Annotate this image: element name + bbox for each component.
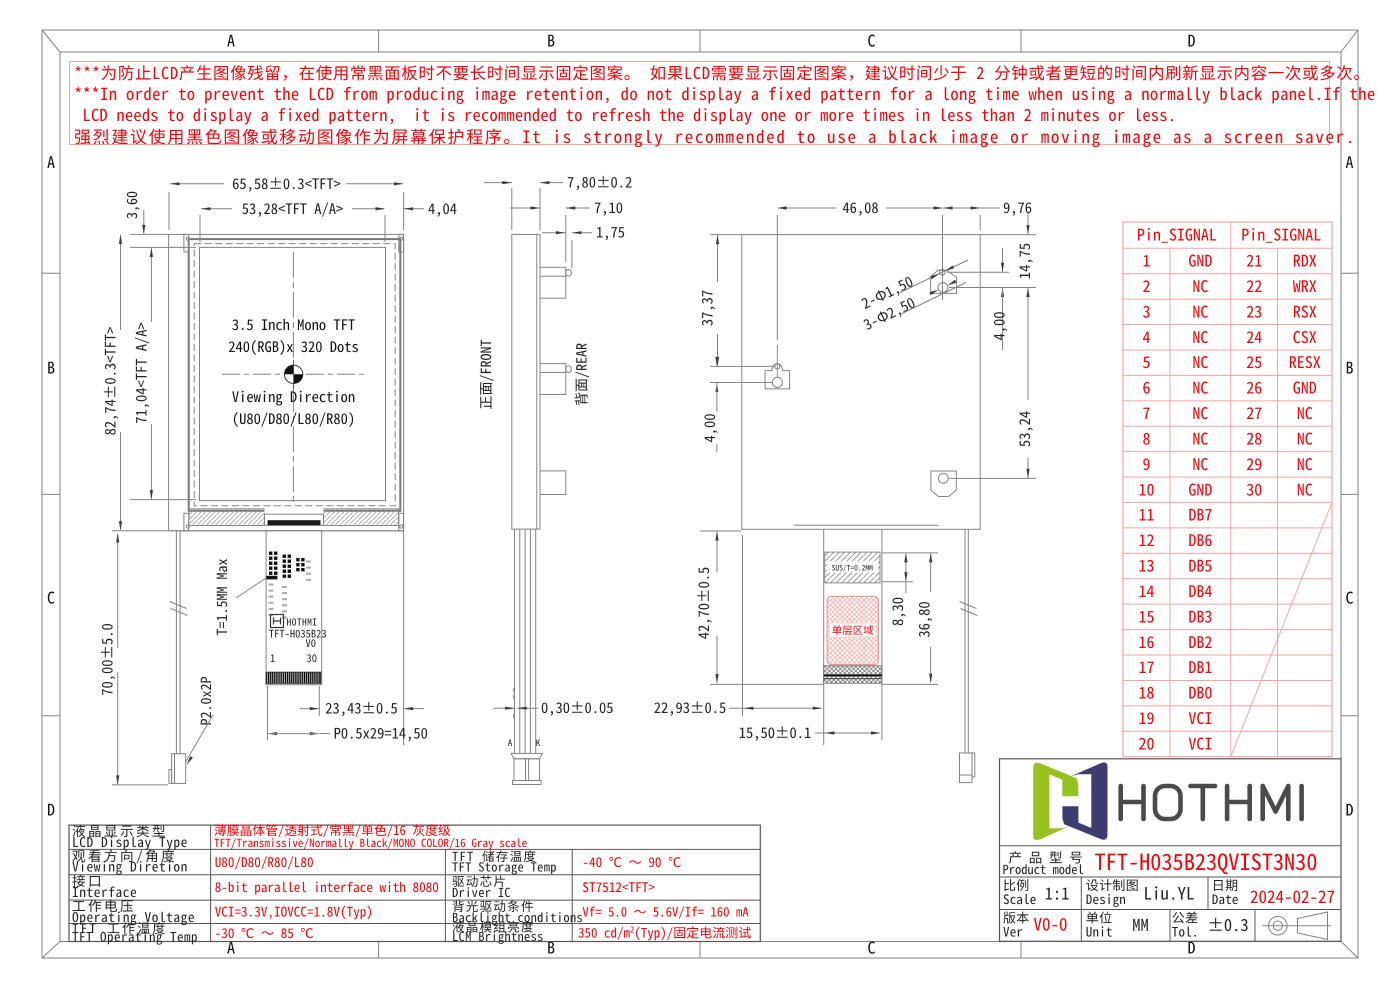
svg-text:NC: NC bbox=[1297, 476, 1313, 500]
svg-text:RDX: RDX bbox=[1293, 248, 1317, 272]
svg-text:29: 29 bbox=[1246, 451, 1262, 475]
svg-text:Scale: Scale bbox=[1003, 889, 1037, 908]
svg-text:20: 20 bbox=[1138, 730, 1154, 754]
svg-text:B: B bbox=[547, 28, 555, 52]
svg-text:4: 4 bbox=[1142, 324, 1150, 348]
svg-text:Vf= 5.0 ～ 5.6V/If= 160 mA: Vf= 5.0 ～ 5.6V/If= 160 mA bbox=[582, 902, 749, 921]
svg-text:6: 6 bbox=[1142, 375, 1150, 399]
svg-text:70,00±5.0: 70,00±5.0 bbox=[97, 623, 118, 696]
svg-text:9: 9 bbox=[1142, 451, 1150, 475]
svg-text:3.5 Inch Mono TFT: 3.5 Inch Mono TFT bbox=[232, 314, 355, 335]
svg-text:36,80: 36,80 bbox=[914, 601, 935, 637]
svg-text:28: 28 bbox=[1246, 425, 1262, 449]
svg-text:TFT Operating Temp: TFT Operating Temp bbox=[72, 926, 198, 945]
svg-text:Unit: Unit bbox=[1086, 922, 1113, 941]
svg-text:GND: GND bbox=[1293, 375, 1317, 399]
svg-text:3: 3 bbox=[1142, 298, 1150, 322]
svg-text:DB3: DB3 bbox=[1188, 603, 1212, 627]
svg-text:8,30: 8,30 bbox=[887, 597, 908, 626]
svg-text:DB4: DB4 bbox=[1188, 578, 1212, 602]
svg-text:NC: NC bbox=[1192, 324, 1208, 348]
svg-text:12: 12 bbox=[1138, 527, 1154, 551]
svg-text:23,43±0.5: 23,43±0.5 bbox=[325, 698, 398, 719]
svg-text:46,08: 46,08 bbox=[842, 197, 878, 218]
svg-text:4,00: 4,00 bbox=[699, 414, 720, 443]
svg-text:NC: NC bbox=[1192, 298, 1208, 322]
svg-text:23: 23 bbox=[1246, 298, 1262, 322]
svg-text:C: C bbox=[867, 935, 875, 959]
svg-text:TFT-H035B23QVIST3N30: TFT-H035B23QVIST3N30 bbox=[1095, 845, 1318, 877]
svg-text:240(RGB)x 320 Dots: 240(RGB)x 320 Dots bbox=[228, 336, 359, 357]
svg-text:A: A bbox=[1345, 149, 1353, 173]
svg-text:7: 7 bbox=[1142, 400, 1150, 424]
svg-text:背面/REAR: 背面/REAR bbox=[572, 343, 592, 406]
svg-text:17: 17 bbox=[1138, 654, 1154, 678]
svg-text:MM: MM bbox=[1132, 912, 1149, 936]
svg-text:DB5: DB5 bbox=[1188, 553, 1212, 577]
svg-text:P0.5x29=14,50: P0.5x29=14,50 bbox=[334, 723, 428, 744]
svg-text:42,70±0.5: 42,70±0.5 bbox=[693, 567, 714, 640]
svg-text:V0-0: V0-0 bbox=[1034, 911, 1068, 936]
svg-text:30: 30 bbox=[307, 651, 318, 666]
svg-text:11: 11 bbox=[1138, 502, 1154, 526]
svg-text:NC: NC bbox=[1297, 400, 1313, 424]
svg-text:1,75: 1,75 bbox=[596, 222, 625, 243]
svg-text:CSX: CSX bbox=[1293, 324, 1317, 348]
svg-text:8: 8 bbox=[1142, 425, 1150, 449]
svg-text:VCI: VCI bbox=[1188, 730, 1212, 754]
svg-text:71,04<TFT A/A>: 71,04<TFT A/A> bbox=[130, 322, 151, 424]
svg-text:Viewing Direction: Viewing Direction bbox=[232, 386, 355, 407]
svg-text:37,37: 37,37 bbox=[697, 290, 718, 326]
svg-text:D: D bbox=[1345, 797, 1353, 821]
svg-text:D: D bbox=[47, 797, 55, 821]
svg-text:7,80±0.2: 7,80±0.2 bbox=[567, 172, 632, 193]
svg-text:VCI=3.3V,IOVCC=1.8V(Typ): VCI=3.3V,IOVCC=1.8V(Typ) bbox=[215, 902, 373, 921]
svg-text:24: 24 bbox=[1246, 324, 1262, 348]
svg-text:RSX: RSX bbox=[1293, 298, 1317, 322]
svg-text:1: 1 bbox=[1142, 248, 1150, 272]
svg-text:NC: NC bbox=[1192, 451, 1208, 475]
svg-text:7,10: 7,10 bbox=[594, 197, 623, 218]
svg-text:NC: NC bbox=[1297, 425, 1313, 449]
svg-text:350 cd/m2(Typ)/固定电流测试: 350 cd/m2(Typ)/固定电流测试 bbox=[578, 923, 751, 942]
svg-text:3,60: 3,60 bbox=[122, 191, 142, 219]
svg-text:LCM Brightness: LCM Brightness bbox=[452, 926, 544, 945]
svg-text:4,04: 4,04 bbox=[428, 198, 457, 219]
svg-text:ST7512<TFT>: ST7512<TFT> bbox=[582, 877, 655, 896]
svg-text:(U80/D80/L80/R80): (U80/D80/L80/R80) bbox=[232, 408, 355, 429]
svg-text:C: C bbox=[47, 585, 55, 609]
svg-text:Date: Date bbox=[1212, 889, 1239, 908]
svg-text:D: D bbox=[1187, 28, 1195, 52]
svg-text:NC: NC bbox=[1192, 400, 1208, 424]
svg-text:WRX: WRX bbox=[1293, 273, 1317, 297]
svg-text:A: A bbox=[227, 28, 235, 52]
svg-text:Ver: Ver bbox=[1003, 922, 1023, 941]
svg-text:GND: GND bbox=[1188, 248, 1212, 272]
svg-text:单层区域: 单层区域 bbox=[832, 623, 874, 638]
svg-text:14: 14 bbox=[1138, 578, 1154, 602]
svg-text:P2.0x2P: P2.0x2P bbox=[196, 677, 216, 726]
svg-text:VCI: VCI bbox=[1188, 705, 1212, 729]
svg-text:1: 1 bbox=[270, 651, 275, 666]
svg-text:19: 19 bbox=[1138, 705, 1154, 729]
svg-text:22: 22 bbox=[1246, 273, 1262, 297]
svg-text:NC: NC bbox=[1297, 451, 1313, 475]
svg-text:26: 26 bbox=[1246, 375, 1262, 399]
svg-text:4,00: 4,00 bbox=[989, 312, 1010, 341]
svg-text:V0: V0 bbox=[306, 636, 317, 651]
svg-text:C: C bbox=[867, 28, 875, 52]
svg-text:0,30±0.05: 0,30±0.05 bbox=[541, 697, 614, 718]
svg-text:±0.3: ±0.3 bbox=[1207, 912, 1248, 936]
svg-text:13: 13 bbox=[1138, 553, 1154, 577]
svg-text:2: 2 bbox=[1142, 273, 1150, 297]
svg-text:10: 10 bbox=[1138, 476, 1154, 500]
svg-text:5: 5 bbox=[1142, 349, 1150, 373]
svg-text:16: 16 bbox=[1138, 629, 1154, 653]
svg-text:A: A bbox=[508, 736, 513, 749]
svg-text:18: 18 bbox=[1138, 680, 1154, 704]
svg-text:53,24: 53,24 bbox=[1014, 411, 1035, 447]
svg-text:15,50±0.1: 15,50±0.1 bbox=[739, 722, 812, 743]
svg-text:TFT-H035B23: TFT-H035B23 bbox=[269, 627, 327, 642]
svg-text:B: B bbox=[547, 935, 555, 959]
svg-text:正面/FRONT: 正面/FRONT bbox=[476, 340, 496, 410]
svg-text:NC: NC bbox=[1192, 349, 1208, 373]
svg-text:8-bit parallel interface with: 8-bit parallel interface with 8080 bbox=[215, 877, 439, 896]
svg-text:NC: NC bbox=[1192, 375, 1208, 399]
svg-text:DB6: DB6 bbox=[1188, 527, 1212, 551]
svg-text:GND: GND bbox=[1188, 476, 1212, 500]
svg-text:Liu.YL: Liu.YL bbox=[1144, 880, 1195, 905]
svg-text:DB1: DB1 bbox=[1188, 654, 1212, 678]
svg-text:Pin_SIGNAL: Pin_SIGNAL bbox=[1137, 222, 1217, 246]
svg-text:82,74±0.3<TFT>: 82,74±0.3<TFT> bbox=[100, 327, 121, 436]
svg-text:U80/D80/R80/L80: U80/D80/R80/L80 bbox=[215, 852, 314, 871]
svg-text:27: 27 bbox=[1246, 400, 1262, 424]
svg-text:2024-02-27: 2024-02-27 bbox=[1250, 883, 1335, 908]
svg-text:14,75: 14,75 bbox=[1014, 243, 1035, 279]
svg-text:C: C bbox=[1345, 585, 1353, 609]
svg-text:-30 ℃ ～ 85 ℃: -30 ℃ ～ 85 ℃ bbox=[215, 923, 314, 942]
svg-text:Tol.: Tol. bbox=[1172, 922, 1199, 941]
svg-text:T=1.5MM Max: T=1.5MM Max bbox=[212, 559, 232, 636]
svg-text:25: 25 bbox=[1246, 349, 1262, 373]
svg-text:SUS/T=0.2MM: SUS/T=0.2MM bbox=[832, 563, 873, 574]
svg-text:65,58±0.3<TFT>: 65,58±0.3<TFT> bbox=[232, 173, 341, 194]
svg-text:B: B bbox=[47, 355, 55, 379]
svg-text:Pin_SIGNAL: Pin_SIGNAL bbox=[1241, 222, 1321, 246]
svg-text:NC: NC bbox=[1192, 425, 1208, 449]
svg-text:RESX: RESX bbox=[1289, 349, 1321, 373]
svg-text:B: B bbox=[1345, 355, 1353, 379]
svg-text:Design: Design bbox=[1086, 889, 1126, 908]
svg-text:21: 21 bbox=[1246, 248, 1262, 272]
svg-text:DB2: DB2 bbox=[1188, 629, 1212, 653]
svg-text:-40 ℃ ～ 90 ℃: -40 ℃ ～ 90 ℃ bbox=[582, 852, 681, 871]
svg-text:K: K bbox=[536, 736, 541, 749]
svg-text:1:1: 1:1 bbox=[1045, 881, 1070, 905]
svg-text:15: 15 bbox=[1138, 603, 1154, 627]
svg-text:30: 30 bbox=[1246, 476, 1262, 500]
svg-text:A: A bbox=[47, 149, 55, 173]
svg-text:NC: NC bbox=[1192, 273, 1208, 297]
svg-text:53,28<TFT A/A>: 53,28<TFT A/A> bbox=[242, 198, 344, 219]
svg-text:DB7: DB7 bbox=[1188, 502, 1212, 526]
svg-text:22,93±0.5: 22,93±0.5 bbox=[654, 697, 727, 718]
svg-text:DB0: DB0 bbox=[1188, 680, 1212, 704]
